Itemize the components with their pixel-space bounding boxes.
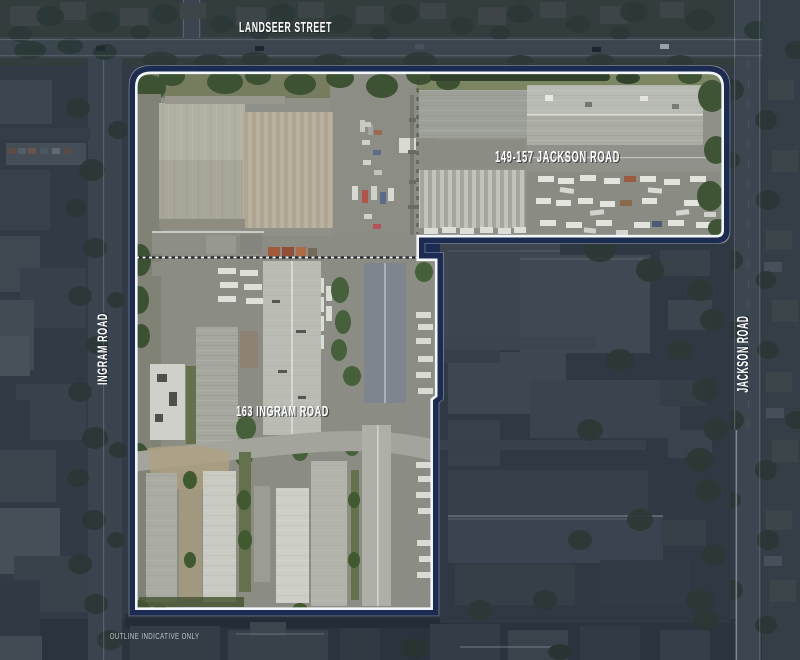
svg-text:INGRAM ROAD: INGRAM ROAD (95, 313, 110, 385)
svg-text:JACKSON ROAD: JACKSON ROAD (733, 315, 752, 392)
svg-text:LANDSEER STREET: LANDSEER STREET (239, 19, 332, 36)
svg-text:OUTLINE INDICATIVE ONLY: OUTLINE INDICATIVE ONLY (110, 631, 200, 641)
svg-text:163 INGRAM ROAD: 163 INGRAM ROAD (236, 403, 329, 420)
svg-text:149-157 JACKSON ROAD: 149-157 JACKSON ROAD (495, 147, 620, 165)
